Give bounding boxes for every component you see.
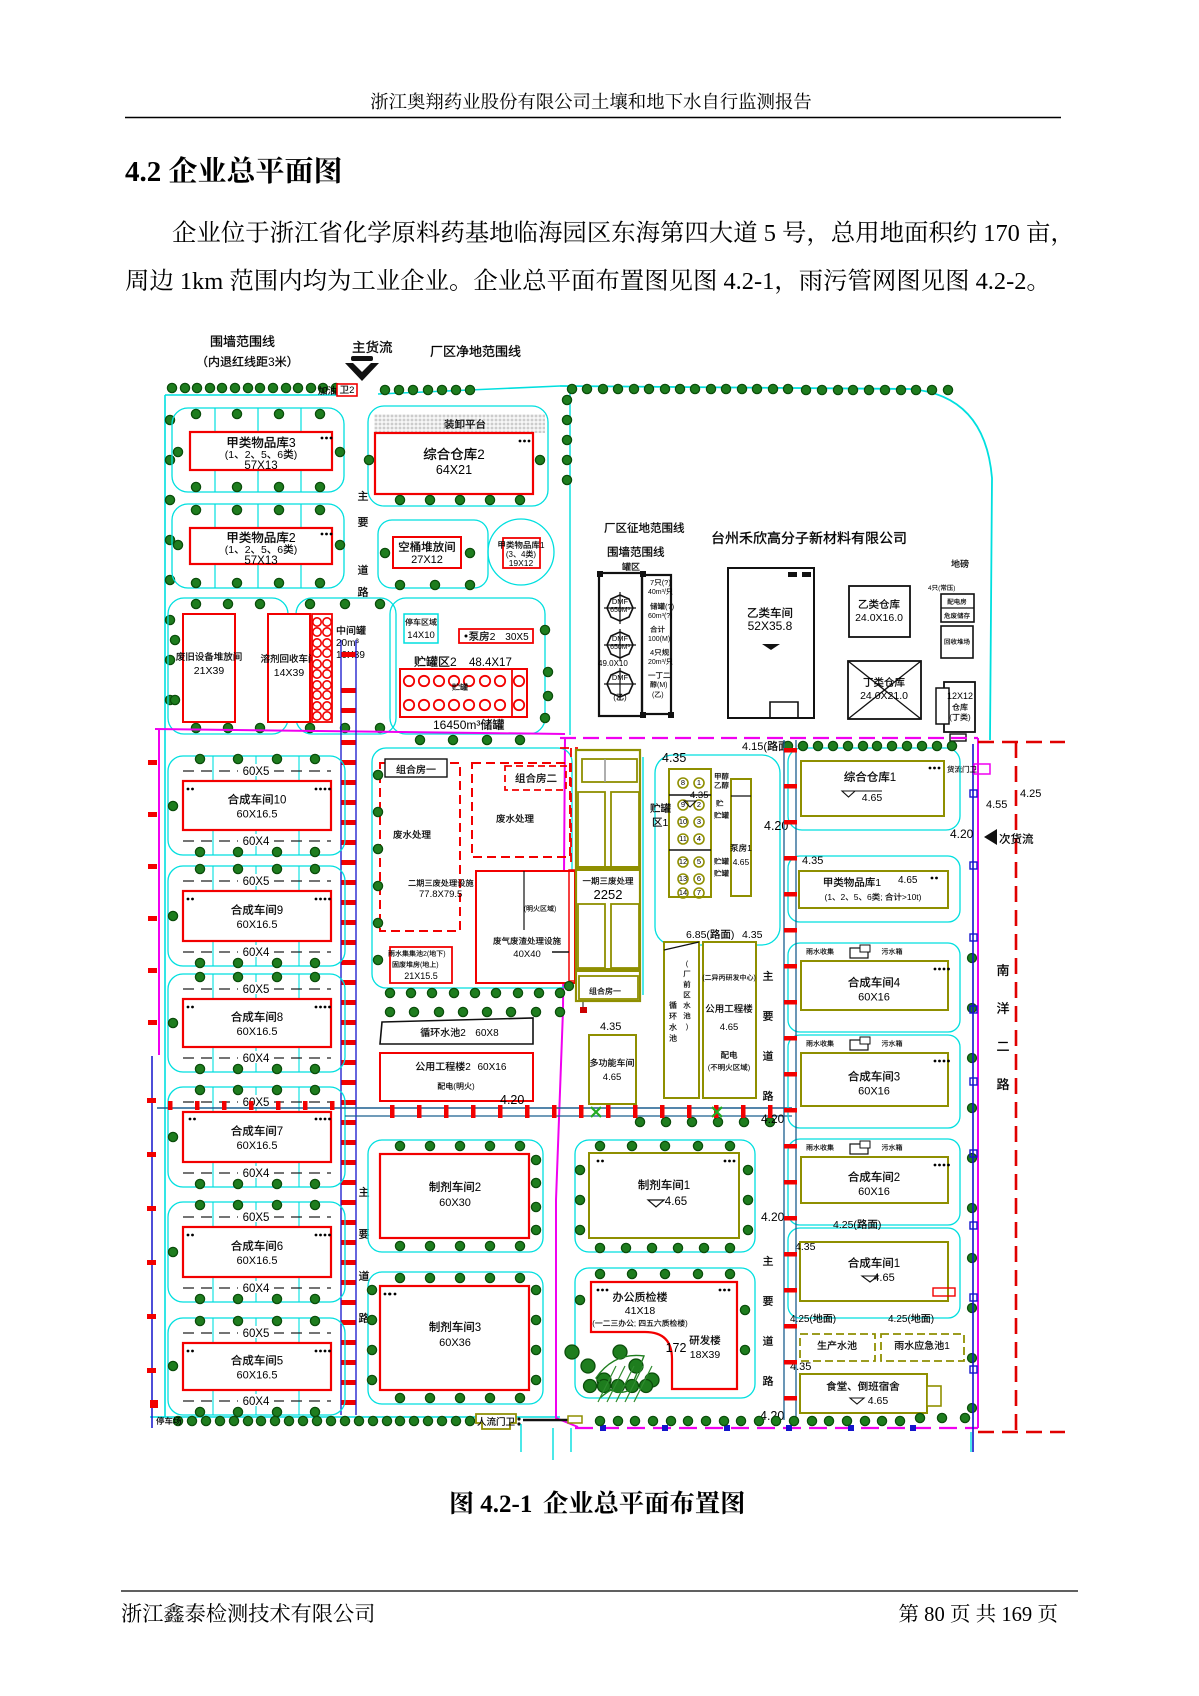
svg-text:2: 2 <box>465 1062 471 1073</box>
svg-text:DMF: DMF <box>612 597 629 606</box>
svg-text:650M³: 650M³ <box>610 644 631 651</box>
svg-text:60X16: 60X16 <box>858 1186 890 1198</box>
svg-text:1: 1 <box>663 817 669 829</box>
svg-text:30X5: 30X5 <box>505 632 529 643</box>
svg-text:1: 1 <box>875 877 881 889</box>
svg-text:2: 2 <box>349 385 354 396</box>
svg-text:60X5: 60X5 <box>243 984 270 996</box>
svg-text:DMF: DMF <box>612 673 629 682</box>
svg-text:4.20: 4.20 <box>761 1210 785 1224</box>
svg-text:172: 172 <box>666 1341 687 1355</box>
svg-text:7: 7 <box>650 578 654 587</box>
svg-text:57X13: 57X13 <box>244 460 277 472</box>
svg-text:60X5: 60X5 <box>243 876 270 888</box>
svg-text:4.35: 4.35 <box>795 1241 816 1253</box>
svg-text:4.65: 4.65 <box>733 857 750 867</box>
svg-text:4.15(: 4.15( <box>742 741 767 753</box>
svg-text:4.2-1: 4.2-1 <box>474 1491 532 1518</box>
svg-text:60X16: 60X16 <box>858 1086 890 1098</box>
svg-text:60X5: 60X5 <box>243 766 270 778</box>
svg-text:3: 3 <box>475 1322 481 1334</box>
svg-text:60X4: 60X4 <box>243 1168 270 1180</box>
svg-text:6.85(: 6.85( <box>686 929 710 941</box>
svg-text:21X39: 21X39 <box>194 665 225 677</box>
svg-text:19X12: 19X12 <box>509 558 534 568</box>
svg-text:DMF: DMF <box>612 634 629 643</box>
svg-text:): ) <box>661 692 663 699</box>
svg-text:2: 2 <box>477 447 485 462</box>
svg-text:;: ; <box>634 1319 638 1328</box>
svg-text:60X4: 60X4 <box>243 1053 270 1065</box>
svg-text:60X4: 60X4 <box>243 836 270 848</box>
svg-text:(: ( <box>613 693 616 702</box>
svg-text:): ) <box>878 1219 882 1231</box>
svg-text:169: 169 <box>996 1604 1037 1626</box>
svg-text:4.65: 4.65 <box>873 1272 894 1284</box>
svg-text:3: 3 <box>697 817 701 826</box>
svg-text:4.65: 4.65 <box>868 1395 889 1407</box>
svg-text:2252: 2252 <box>594 887 623 902</box>
svg-text:48.4X17: 48.4X17 <box>469 657 512 669</box>
svg-text:): ) <box>294 449 298 461</box>
svg-text:4.2-1: 4.2-1 <box>717 268 774 295</box>
svg-text:13: 13 <box>679 874 687 883</box>
svg-text:4.35: 4.35 <box>600 1021 621 1033</box>
svg-text:1km: 1km <box>174 268 230 295</box>
svg-text:4.35: 4.35 <box>662 751 686 765</box>
svg-text:60X16: 60X16 <box>858 992 890 1004</box>
svg-text:60X4: 60X4 <box>243 947 270 959</box>
svg-text:): ) <box>931 1314 934 1325</box>
svg-text:1: 1 <box>540 540 545 550</box>
svg-text:4.55: 4.55 <box>986 799 1007 811</box>
svg-text:41X18: 41X18 <box>625 1305 656 1317</box>
svg-text:2: 2 <box>697 800 701 809</box>
svg-text:5: 5 <box>758 220 782 247</box>
svg-text:77.8X79.5: 77.8X79.5 <box>419 889 462 900</box>
svg-text:14: 14 <box>679 888 687 897</box>
svg-text:60X16.5: 60X16.5 <box>237 809 278 821</box>
svg-text:3: 3 <box>268 355 275 369</box>
svg-text:): ) <box>443 951 445 958</box>
svg-text:170: 170 <box>977 220 1026 247</box>
svg-text:6: 6 <box>697 874 701 883</box>
svg-text:): ) <box>554 906 556 913</box>
svg-text:4.65: 4.65 <box>862 792 883 804</box>
svg-text:7: 7 <box>277 1126 283 1138</box>
svg-text:10: 10 <box>679 817 687 826</box>
svg-text:21X15.5: 21X15.5 <box>404 971 438 981</box>
svg-text:10: 10 <box>274 795 287 807</box>
svg-text:>10t): >10t) <box>902 892 922 902</box>
svg-text:2: 2 <box>841 892 846 902</box>
svg-text:(: ( <box>453 1082 456 1091</box>
svg-text:60X5: 60X5 <box>243 1212 270 1224</box>
svg-text:): ) <box>624 693 627 702</box>
svg-text:60X16.5: 60X16.5 <box>237 1026 278 1038</box>
svg-text:60X16.5: 60X16.5 <box>237 1140 278 1152</box>
svg-text:60X36: 60X36 <box>439 1337 471 1349</box>
svg-text:40X40: 40X40 <box>513 949 540 960</box>
svg-text:(: ( <box>592 1319 595 1328</box>
svg-text:(?): (?) <box>665 602 675 611</box>
svg-text:4.2: 4.2 <box>125 156 169 188</box>
svg-text:1: 1 <box>894 1258 900 1270</box>
svg-text:(1: (1 <box>825 892 833 902</box>
svg-text:12: 12 <box>679 857 687 866</box>
svg-text:100(M): 100(M) <box>648 636 670 643</box>
svg-text:): ) <box>472 1082 475 1091</box>
svg-text:4.2-2: 4.2-2 <box>970 268 1027 295</box>
svg-text:6: 6 <box>277 1241 283 1253</box>
svg-text:2: 2 <box>450 655 457 669</box>
svg-text:4.25(: 4.25( <box>790 1314 813 1325</box>
svg-text:60X5: 60X5 <box>243 1328 270 1340</box>
svg-text:4.35: 4.35 <box>742 929 763 941</box>
svg-text:5: 5 <box>697 857 701 866</box>
svg-text:18X39: 18X39 <box>690 1349 721 1361</box>
svg-text:4.20: 4.20 <box>950 827 974 841</box>
svg-text:1: 1 <box>890 772 896 784</box>
svg-text:3: 3 <box>289 436 296 450</box>
svg-text:4: 4 <box>928 585 932 592</box>
svg-text:650M³: 650M³ <box>610 607 631 614</box>
svg-text:52X35.8: 52X35.8 <box>748 619 793 633</box>
svg-text:60X16.5: 60X16.5 <box>237 919 278 931</box>
svg-text:;: ; <box>880 892 885 902</box>
svg-text:): ) <box>754 975 756 982</box>
svg-text:7: 7 <box>697 888 701 897</box>
svg-text:4: 4 <box>894 978 901 990</box>
svg-text:4.25(: 4.25( <box>833 1219 857 1231</box>
svg-text:): ) <box>685 1319 688 1328</box>
svg-text:): ) <box>833 1314 836 1325</box>
svg-text:60X8: 60X8 <box>475 1028 499 1039</box>
svg-text:5: 5 <box>854 892 859 902</box>
svg-text:2: 2 <box>490 631 496 643</box>
svg-text:): ) <box>968 713 971 722</box>
svg-text:60X4: 60X4 <box>243 1283 270 1295</box>
svg-text:(: ( <box>949 713 952 722</box>
svg-text:): ) <box>533 550 536 559</box>
svg-text:14X39: 14X39 <box>274 667 305 679</box>
svg-text:49.0X10: 49.0X10 <box>598 659 628 668</box>
svg-text:1: 1 <box>697 778 701 787</box>
svg-text:40m³/: 40m³/ <box>648 589 666 596</box>
svg-text:16450m³: 16450m³ <box>433 718 480 732</box>
svg-text:2: 2 <box>289 531 296 545</box>
svg-text:(1: (1 <box>225 449 234 461</box>
svg-text:4.65: 4.65 <box>898 875 918 886</box>
svg-text:64X21: 64X21 <box>436 463 472 477</box>
svg-text:6: 6 <box>867 892 872 902</box>
svg-text:4.35: 4.35 <box>690 790 709 801</box>
svg-text:24.0X16.0: 24.0X16.0 <box>855 612 903 624</box>
svg-text:60m³(?): 60m³(?) <box>648 613 673 620</box>
svg-text:(?): (?) <box>662 578 672 587</box>
svg-text:(1: (1 <box>225 544 234 556</box>
svg-text:2: 2 <box>894 1172 900 1184</box>
svg-text:60X4: 60X4 <box>243 1396 270 1408</box>
svg-text:6: 6 <box>277 544 283 556</box>
svg-text:4.35: 4.35 <box>802 855 823 867</box>
svg-text:8: 8 <box>277 1012 283 1024</box>
svg-text:): ) <box>731 929 735 941</box>
svg-text:4: 4 <box>697 834 701 843</box>
svg-text:1: 1 <box>747 843 752 853</box>
svg-text:5: 5 <box>277 1356 283 1368</box>
svg-text:20m³/: 20m³/ <box>648 659 666 666</box>
svg-text:4.25: 4.25 <box>1020 788 1041 800</box>
svg-text:80: 80 <box>919 1604 950 1626</box>
svg-text:3: 3 <box>894 1072 900 1084</box>
svg-text:4: 4 <box>650 648 654 657</box>
svg-text:60X16: 60X16 <box>478 1062 507 1073</box>
svg-text:14X10: 14X10 <box>407 630 434 641</box>
svg-text:4.25(: 4.25( <box>888 1314 911 1325</box>
svg-text:): ) <box>953 585 955 592</box>
svg-text:2: 2 <box>460 1028 466 1039</box>
svg-text:8: 8 <box>681 778 685 787</box>
svg-text:1: 1 <box>684 1180 690 1192</box>
svg-text:): ) <box>294 544 298 556</box>
svg-text:12X12: 12X12 <box>947 691 973 701</box>
svg-text:9: 9 <box>277 905 283 917</box>
svg-text:): ) <box>436 962 438 969</box>
svg-text:6: 6 <box>277 449 283 461</box>
svg-text:27X12: 27X12 <box>411 554 443 566</box>
svg-text:(M): (M) <box>657 682 668 689</box>
svg-text:60X16.5: 60X16.5 <box>237 1370 278 1382</box>
svg-text:1: 1 <box>944 1341 950 1352</box>
svg-text:4.65: 4.65 <box>665 1196 687 1208</box>
svg-text:4.20: 4.20 <box>500 1093 524 1107</box>
svg-text:2: 2 <box>475 1182 481 1194</box>
svg-text:4.65: 4.65 <box>720 1022 739 1033</box>
svg-text:24.0X21.0: 24.0X21.0 <box>860 690 908 702</box>
svg-text:60X16.5: 60X16.5 <box>237 1255 278 1267</box>
svg-text:2(: 2( <box>423 951 430 958</box>
svg-text:60X30: 60X30 <box>439 1197 471 1209</box>
svg-text:11: 11 <box>679 834 687 843</box>
svg-text:4.20: 4.20 <box>761 1112 785 1126</box>
svg-text:57X13: 57X13 <box>244 555 277 567</box>
svg-text:4.65: 4.65 <box>603 1072 622 1083</box>
